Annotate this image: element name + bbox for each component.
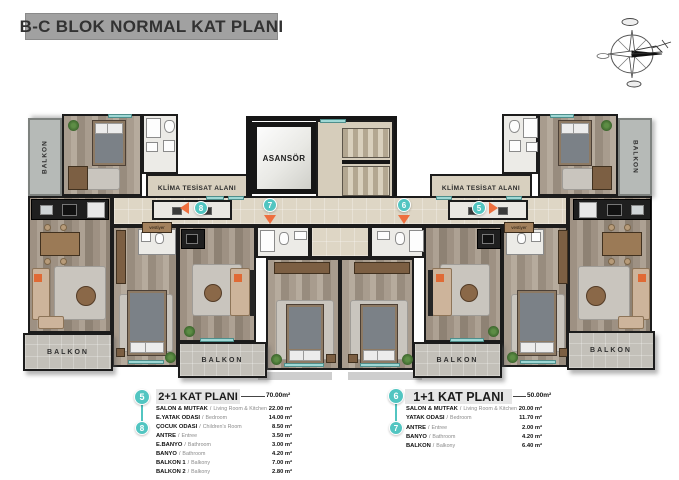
balcony-door — [520, 360, 556, 364]
klima-label: KLİMA TESİSAT ALANI — [442, 185, 520, 192]
elevator-label: ASANSÖR — [263, 154, 306, 163]
fridge — [87, 202, 105, 218]
balcony-bottom-center-left: BALKON — [178, 342, 267, 378]
marker-5-arrow — [489, 202, 498, 214]
coffee-table — [586, 286, 606, 306]
balkon-label: BALKON — [47, 349, 89, 356]
legend-2plus1-rows: SALON & MUTFAK/Living Room & Kitchen22.0… — [156, 406, 292, 478]
bed — [558, 120, 592, 166]
pillow — [34, 274, 42, 282]
kitchen-counter — [181, 229, 205, 249]
sink — [294, 231, 307, 240]
row-name: E.BANYO — [156, 442, 182, 448]
row-separator: / — [184, 442, 185, 448]
window — [320, 119, 346, 123]
floor-plan-page: B-C BLOK NORMAL KAT PLANI BALKON KLİMA T… — [0, 0, 679, 480]
stove — [482, 234, 494, 244]
sink — [40, 205, 53, 215]
coffee-table — [460, 284, 478, 302]
tv-unit — [428, 270, 433, 316]
sink — [141, 232, 151, 242]
chair — [624, 224, 631, 231]
row-value: 4.20 m² — [522, 434, 542, 440]
marker-8-arrow — [180, 202, 189, 214]
row-sub: Children's Room — [203, 424, 242, 430]
chair — [608, 224, 615, 231]
tv-unit — [250, 270, 255, 316]
balkon-label: BALKON — [632, 140, 639, 174]
row-separator: / — [428, 425, 429, 431]
sink — [526, 142, 538, 152]
legend-1plus1-rows: SALON & MUTFAK/Living Room & Kitchen20.0… — [406, 406, 542, 452]
vestiyer-label: vestiyer — [511, 225, 527, 230]
row-name: BALKON 2 — [156, 469, 186, 475]
row-name: E.YATAK ODASI — [156, 415, 200, 421]
row-separator: / — [199, 424, 200, 430]
legend-1plus1-total: 50.00m² — [527, 392, 551, 399]
room-bedroom-2plus1-right — [502, 226, 568, 367]
row-sub: Living Room & Kitchen — [213, 406, 267, 412]
room-salon-1plus1-right — [424, 226, 502, 342]
row-value: 14.00 m² — [269, 415, 292, 421]
legend-row: SALON & MUTFAK/Living Room & Kitchen22.0… — [156, 406, 292, 415]
pillow — [234, 274, 242, 282]
vestiyer-label: vestiyer — [149, 225, 165, 230]
legend-row: ANTRE/Entree3.50 m² — [156, 433, 292, 442]
room-bath-1plus1-right — [370, 226, 424, 258]
legend-2plus1-title: 2+1 KAT PLANI — [156, 389, 240, 404]
nightstand — [348, 354, 358, 363]
legend-row: E.BANYO/Bathroom3.00 m² — [156, 442, 292, 451]
room-bath-1plus1-left — [256, 226, 310, 258]
row-sub: Bathroom — [182, 451, 205, 457]
row-sub: Living Room & Kitchen — [463, 406, 517, 412]
legend-leader-line — [513, 396, 526, 397]
room-salon-1plus1-left — [178, 226, 256, 342]
stairwell — [316, 120, 394, 200]
toilet — [164, 120, 175, 133]
vestiyer-left: vestiyer — [142, 222, 172, 233]
row-sub: Bathroom — [188, 442, 211, 448]
sink — [631, 205, 644, 215]
room-living-2plus1-right — [568, 196, 652, 333]
kitchen-counter — [31, 199, 109, 220]
balcony-top-right: BALKON — [618, 118, 652, 196]
row-name: BANYO — [406, 434, 427, 440]
building-shadow — [348, 372, 422, 380]
row-value: 2.80 m² — [272, 469, 292, 475]
balcony-bottom-center-right: BALKON — [413, 342, 502, 378]
shower — [523, 118, 538, 138]
page-title: B-C BLOK NORMAL KAT PLANI — [25, 13, 278, 40]
balkon-label: BALKON — [42, 140, 49, 174]
coffee-table — [204, 284, 222, 302]
nightstand — [116, 348, 125, 357]
balkon-label: BALKON — [437, 357, 479, 364]
room-bath-top-right — [502, 114, 538, 174]
row-separator: / — [460, 406, 461, 412]
marker-5: 5 — [472, 201, 486, 215]
row-sub: Balkony — [436, 443, 455, 449]
legend-row: E.YATAK ODASI/Bedroom14.00 m² — [156, 415, 292, 424]
marker-7: 7 — [263, 198, 277, 212]
row-name: SALON & MUTFAK — [156, 406, 208, 412]
row-separator: / — [429, 434, 430, 440]
legend-row: BANYO/Bathroom4.20 m² — [156, 451, 292, 460]
antre-middle — [310, 226, 370, 258]
row-name: ANTRE — [406, 425, 426, 431]
room-bath-top-left — [142, 114, 178, 174]
balkon-label: BALKON — [202, 357, 244, 364]
window — [550, 114, 574, 118]
coffee-table — [76, 286, 96, 306]
room-bedroom-top-left — [62, 114, 142, 196]
bed — [360, 304, 398, 364]
washer — [163, 140, 175, 152]
nightstand — [326, 354, 336, 363]
bed — [92, 120, 126, 166]
row-name: BALKON 1 — [156, 460, 186, 466]
row-value: 20.00 m² — [519, 406, 542, 412]
plant-icon — [488, 326, 499, 337]
room-bedroom-2plus1-left — [112, 226, 178, 367]
row-sub: Bedroom — [450, 415, 472, 421]
row-name: SALON & MUTFAK — [406, 406, 458, 412]
balcony-bottom-far-left: BALKON — [23, 333, 113, 371]
wardrobe — [116, 230, 126, 284]
legend-leader-line — [241, 396, 265, 397]
kitchen-counter-marble-left — [152, 200, 232, 220]
pillow — [436, 274, 444, 282]
toilet — [279, 232, 289, 245]
sink — [377, 231, 390, 240]
legend-row: SALON & MUTFAK/Living Room & Kitchen20.0… — [406, 406, 542, 415]
row-separator: / — [179, 451, 180, 457]
row-name: BANYO — [156, 451, 177, 457]
kitchen-counter-marble-right — [448, 200, 528, 220]
shower — [409, 230, 424, 252]
stair-rail — [342, 160, 390, 164]
legend-row: BALKON/Balkony6.40 m² — [406, 443, 542, 452]
marker-8: 8 — [194, 201, 208, 215]
compass-rose-icon — [592, 12, 674, 92]
legend-marker-8: 8 — [135, 421, 149, 435]
room-bedroom-1plus1-left — [266, 258, 340, 370]
row-name: BALKON — [406, 443, 431, 449]
dining-table — [602, 232, 642, 256]
row-value: 11.70 m² — [519, 415, 542, 421]
chair — [624, 258, 631, 265]
plant-icon — [184, 326, 195, 337]
bed — [286, 304, 324, 364]
stove — [607, 204, 622, 216]
row-separator: / — [178, 433, 179, 439]
row-name: ANTRE — [156, 433, 176, 439]
stove — [186, 234, 198, 244]
row-value: 6.40 m² — [522, 443, 542, 449]
balkon-label: BALKON — [590, 347, 632, 354]
legend-connector — [395, 403, 397, 422]
sink — [531, 232, 541, 242]
plant-icon — [601, 120, 612, 131]
legend-row: BANYO/Bathroom4.20 m² — [406, 434, 542, 443]
kitchen-counter — [573, 199, 651, 220]
row-separator: / — [202, 415, 203, 421]
row-value: 4.20 m² — [272, 451, 292, 457]
legend-marker-7: 7 — [389, 421, 403, 435]
klima-label: KLİMA TESİSAT ALANI — [158, 185, 236, 192]
shower — [146, 118, 161, 138]
legend-row: ÇOCUK ODASI/Children's Room8.50 m² — [156, 424, 292, 433]
toilet — [395, 232, 405, 245]
legend-row: YATAK ODASI/Bedroom11.70 m² — [406, 415, 542, 424]
balcony-door — [284, 363, 324, 367]
balcony-bottom-far-right: BALKON — [567, 331, 655, 370]
wardrobe — [558, 230, 568, 284]
legend-marker-6: 6 — [388, 388, 404, 404]
plant-icon — [165, 352, 176, 363]
marker-6-arrow — [398, 215, 410, 224]
legend-marker-5: 5 — [134, 389, 150, 405]
row-value: 3.50 m² — [272, 433, 292, 439]
room-bedroom-1plus1-right — [340, 258, 414, 370]
row-separator: / — [188, 460, 189, 466]
rug — [562, 168, 596, 190]
dresser — [354, 262, 410, 274]
building-shadow — [258, 372, 332, 380]
legend-row: BALKON 1/Balkony7.00 m² — [156, 460, 292, 469]
row-value: 7.00 m² — [272, 460, 292, 466]
row-sub: Entree — [431, 425, 447, 431]
desk — [592, 166, 612, 190]
row-name: ÇOCUK ODASI — [156, 424, 197, 430]
row-sub: Bedroom — [206, 415, 228, 421]
desk — [68, 166, 88, 190]
chair — [44, 224, 51, 231]
window — [108, 114, 132, 118]
plant-icon — [68, 120, 79, 131]
row-separator: / — [433, 443, 434, 449]
row-sub: Balkony — [191, 460, 210, 466]
vestiyer-right: vestiyer — [504, 222, 534, 233]
shower — [260, 230, 275, 252]
washer — [509, 140, 521, 152]
stair-flight — [342, 128, 390, 158]
chair — [60, 258, 67, 265]
toilet — [155, 233, 164, 244]
room-living-2plus1-left — [28, 196, 112, 333]
plant-icon — [402, 354, 413, 365]
row-separator: / — [210, 406, 211, 412]
balcony-door — [128, 360, 164, 364]
row-sub: Entree — [181, 433, 197, 439]
room-bedroom-top-right — [538, 114, 618, 196]
balcony-door — [360, 363, 400, 367]
row-name: YATAK ODASI — [406, 415, 445, 421]
row-separator: / — [447, 415, 448, 421]
armchair — [38, 316, 64, 329]
chair — [60, 224, 67, 231]
balcony-top-left: BALKON — [28, 118, 62, 196]
pillow — [638, 274, 646, 282]
marker-7-arrow — [264, 215, 276, 224]
dresser — [274, 262, 330, 274]
rug — [86, 168, 120, 190]
row-sub: Bathroom — [432, 434, 455, 440]
row-separator: / — [188, 469, 189, 475]
bed — [517, 290, 557, 356]
plant-icon — [271, 354, 282, 365]
chair — [608, 258, 615, 265]
stair-flight — [342, 166, 390, 196]
sink — [498, 207, 508, 215]
bed — [127, 290, 167, 356]
toilet — [509, 120, 520, 133]
armchair — [618, 316, 644, 329]
legend-1plus1-title: 1+1 KAT PLANI — [405, 389, 512, 404]
row-value: 2.00 m² — [522, 425, 542, 431]
fridge — [579, 202, 597, 218]
stove — [62, 204, 77, 216]
kitchen-counter — [477, 229, 501, 249]
dining-table — [40, 232, 80, 256]
row-value: 3.00 m² — [272, 442, 292, 448]
toilet — [517, 233, 526, 244]
sink — [146, 142, 158, 152]
marker-6: 6 — [397, 198, 411, 212]
row-value: 22.00 m² — [269, 406, 292, 412]
row-value: 8.50 m² — [272, 424, 292, 430]
plant-icon — [507, 352, 518, 363]
elevator: ASANSÖR — [252, 122, 316, 194]
legend-row: BALKON 2/Balkony2.80 m² — [156, 469, 292, 478]
chair — [44, 258, 51, 265]
row-sub: Balkony — [191, 469, 210, 475]
legend-2plus1-total: 70.00m² — [266, 392, 290, 399]
legend-row: ANTRE/Entree2.00 m² — [406, 425, 542, 434]
